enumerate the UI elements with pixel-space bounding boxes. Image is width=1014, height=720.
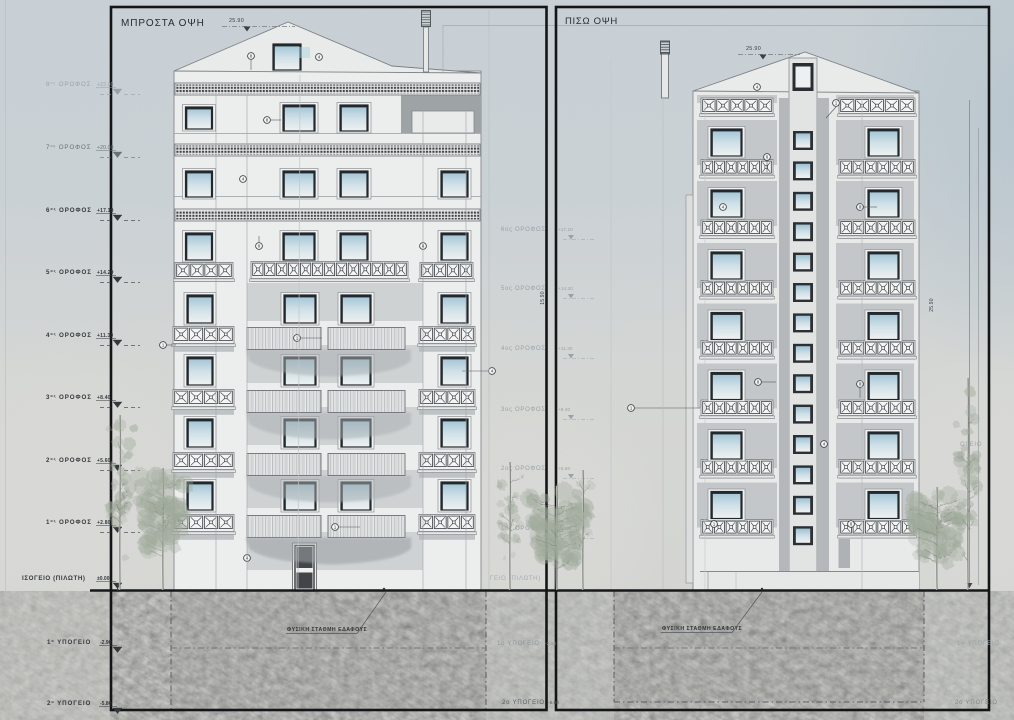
- svg-text:-2.90: -2.90: [100, 640, 112, 646]
- svg-text:+22.90: +22.90: [97, 82, 114, 88]
- svg-text:+14.20: +14.20: [97, 270, 114, 276]
- svg-text:±0.00: ±0.00: [97, 576, 110, 582]
- svg-text:2ο ΥΠΟΓΕΙΟ: 2ο ΥΠΟΓΕΙΟ: [955, 700, 998, 706]
- svg-text:4ος ΟΡΟΦΟΣ: 4ος ΟΡΟΦΟΣ: [501, 346, 546, 352]
- svg-text:3ος ΟΡΟΦΟΣ: 3ος ΟΡΟΦΟΣ: [501, 407, 546, 413]
- svg-text:+11.30: +11.30: [558, 346, 573, 352]
- svg-text:1ο ΥΠΟΓΕΙΟ: 1ο ΥΠΟΓΕΙΟ: [957, 641, 1000, 647]
- svg-text:-5.80: -5.80: [548, 700, 559, 706]
- svg-text:ΠΙΣΩ ΟΨΗ: ΠΙΣΩ ΟΨΗ: [565, 16, 618, 27]
- svg-text:1ο ΥΠΟΓΕΙΟ: 1ο ΥΠΟΓΕΙΟ: [497, 641, 540, 647]
- svg-text:+2.80: +2.80: [97, 520, 111, 526]
- svg-text:ΦΥΣΙΚΗ ΣΤΑΘΜΗ ΕΔΑΦΟΥΣ: ΦΥΣΙΚΗ ΣΤΑΘΜΗ ΕΔΑΦΟΥΣ: [287, 627, 367, 633]
- svg-text:5ος ΟΡΟΦΟΣ: 5ος ΟΡΟΦΟΣ: [501, 286, 546, 292]
- svg-text:+20.00: +20.00: [97, 145, 114, 151]
- svg-text:2ο ΥΠΟΓΕΙΟ: 2ο ΥΠΟΓΕΙΟ: [47, 700, 91, 707]
- svg-text:2ο ΥΠΟΓΕΙΟ: 2ο ΥΠΟΓΕΙΟ: [502, 700, 545, 706]
- svg-text:+14.20: +14.20: [558, 286, 573, 292]
- svg-text:ΦΥΣΙΚΗ ΣΤΑΘΜΗ ΕΔΑΦΟΥΣ: ΦΥΣΙΚΗ ΣΤΑΘΜΗ ΕΔΑΦΟΥΣ: [662, 626, 742, 632]
- svg-text:2ος ΟΡΟΦΟΣ: 2ος ΟΡΟΦΟΣ: [501, 466, 546, 472]
- svg-text:25.90: 25.90: [929, 298, 935, 312]
- svg-text:15.90: 15.90: [540, 291, 546, 305]
- svg-text:+8.40: +8.40: [558, 407, 570, 413]
- svg-text:ΜΠΡΟΣΤΑ ΟΨΗ: ΜΠΡΟΣΤΑ ΟΨΗ: [121, 18, 205, 29]
- svg-text:ΓΕΙΟ (ΠΙΛΩΤΗ): ΓΕΙΟ (ΠΙΛΩΤΗ): [490, 576, 541, 582]
- svg-text:-2.90: -2.90: [545, 641, 556, 647]
- svg-text:-5.80: -5.80: [100, 701, 112, 707]
- svg-text:+17.10: +17.10: [558, 227, 573, 233]
- svg-text:25.90: 25.90: [229, 18, 244, 24]
- svg-text:+5.60: +5.60: [558, 466, 570, 472]
- svg-text:ΙΣΟΓΕΙΟ (ΠΙΛΩΤΗ): ΙΣΟΓΕΙΟ (ΠΙΛΩΤΗ): [22, 575, 86, 582]
- svg-text:+8.40: +8.40: [97, 395, 111, 401]
- svg-text:+17.10: +17.10: [97, 208, 114, 214]
- svg-text:+5.60: +5.60: [97, 458, 111, 464]
- svg-text:1ο ΥΠΟΓΕΙΟ: 1ο ΥΠΟΓΕΙΟ: [47, 639, 91, 646]
- svg-text:6ος ΟΡΟΦΟΣ: 6ος ΟΡΟΦΟΣ: [501, 227, 546, 233]
- svg-text:25.90: 25.90: [746, 46, 761, 52]
- svg-text:+11.30: +11.30: [97, 333, 113, 339]
